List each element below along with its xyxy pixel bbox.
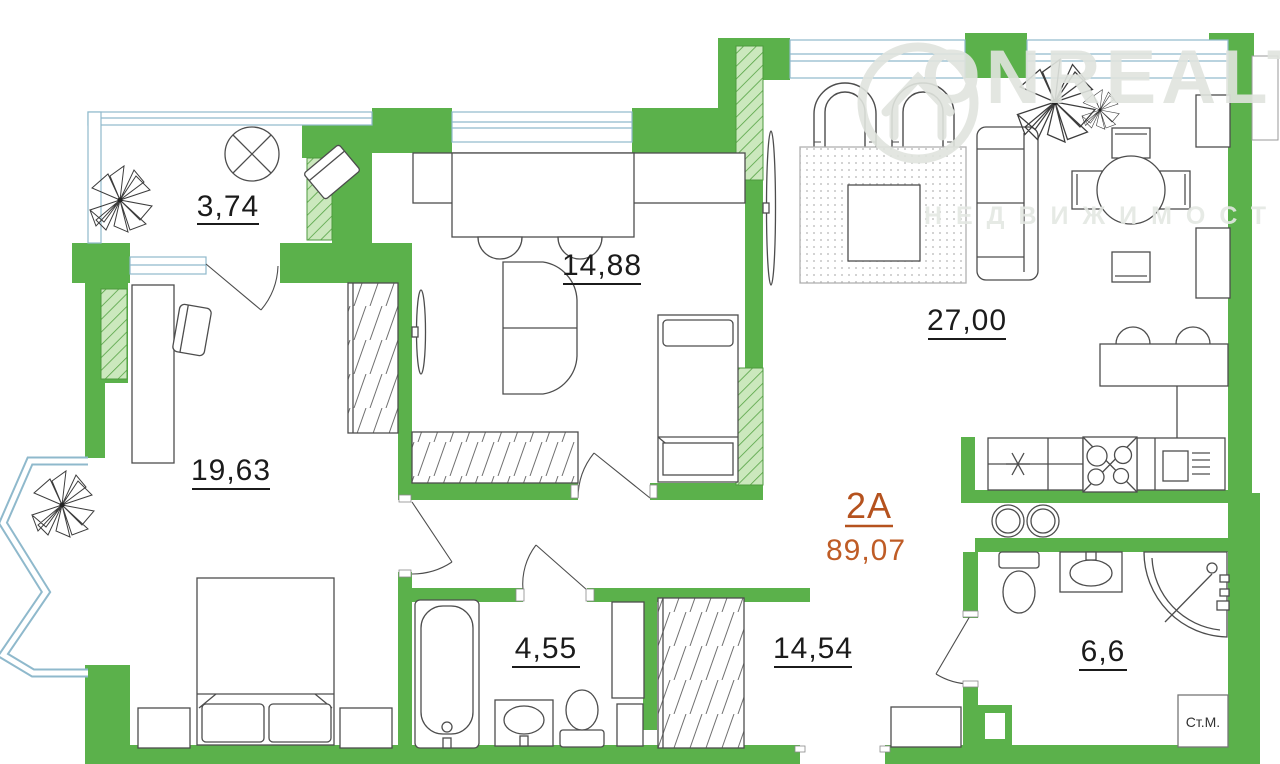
bedroom-furniture — [132, 283, 398, 748]
shaft-opening — [985, 713, 1005, 739]
watermark-tagline: НЕДВИЖИМОСТЬ — [924, 202, 1280, 230]
door-bathroom-small — [523, 545, 587, 590]
pillow — [663, 320, 733, 346]
washing-machine-label: Ст.М. — [1186, 714, 1220, 730]
coffee-table — [848, 185, 920, 261]
door-kids-room — [578, 453, 650, 498]
wall-cabinet — [1196, 228, 1230, 298]
closet — [412, 432, 578, 483]
floor-plan-page: Ст.М. 3,74 14,88 19,63 27,00 4,55 14,54 … — [0, 0, 1280, 764]
room-area-kids-room: 14,88 — [562, 249, 642, 282]
wardrobe — [348, 283, 398, 433]
living-furniture — [763, 83, 1230, 492]
watermark-brand: ONREALT — [922, 35, 1280, 120]
toilet — [1003, 571, 1035, 613]
pillow — [202, 704, 264, 742]
room-area-bathroom-large: 6,6 — [1081, 635, 1126, 668]
toilet-tank — [560, 730, 604, 747]
nightstand — [340, 708, 392, 748]
room-area-bathroom-small: 4,55 — [515, 632, 577, 665]
bay-window — [3, 461, 88, 673]
door-bedroom — [412, 502, 452, 574]
fridge — [1163, 451, 1188, 481]
chair — [478, 237, 522, 259]
bar-stools — [1116, 327, 1210, 344]
room-area-hallway: 14,54 — [773, 632, 853, 665]
unit-number: 2A — [846, 485, 892, 526]
plant-icon — [32, 471, 94, 537]
kitchen-row — [988, 437, 1225, 492]
bench — [891, 707, 961, 747]
total-area: 89,07 — [826, 534, 906, 567]
desk-chair — [172, 304, 212, 357]
pillow — [269, 704, 331, 742]
cabinet — [612, 602, 644, 698]
bar-counter — [1100, 344, 1228, 386]
apartment-label: 2A 89,07 — [826, 485, 906, 567]
nightstand — [138, 708, 190, 748]
niche-sinks — [992, 505, 1059, 537]
desk-deep — [452, 153, 634, 237]
door-balcony — [206, 264, 278, 310]
room-area-bedroom: 19,63 — [191, 454, 271, 487]
room-area-living: 27,00 — [927, 304, 1007, 337]
window-kids-room — [452, 112, 632, 142]
kids-room-furniture — [412, 153, 745, 483]
toilet-tank — [999, 552, 1039, 568]
desk — [132, 285, 174, 463]
hallway-furniture — [658, 598, 961, 748]
hall-wardrobe — [658, 598, 744, 748]
toilet — [566, 690, 598, 730]
door-bathroom-large — [936, 616, 970, 684]
cabinet-low — [617, 704, 643, 746]
floor-plan: Ст.М. 3,74 14,88 19,63 27,00 4,55 14,54 … — [0, 0, 1280, 764]
bathroom-small-fixtures — [415, 600, 644, 748]
room-area-balcony: 3,74 — [197, 190, 259, 223]
